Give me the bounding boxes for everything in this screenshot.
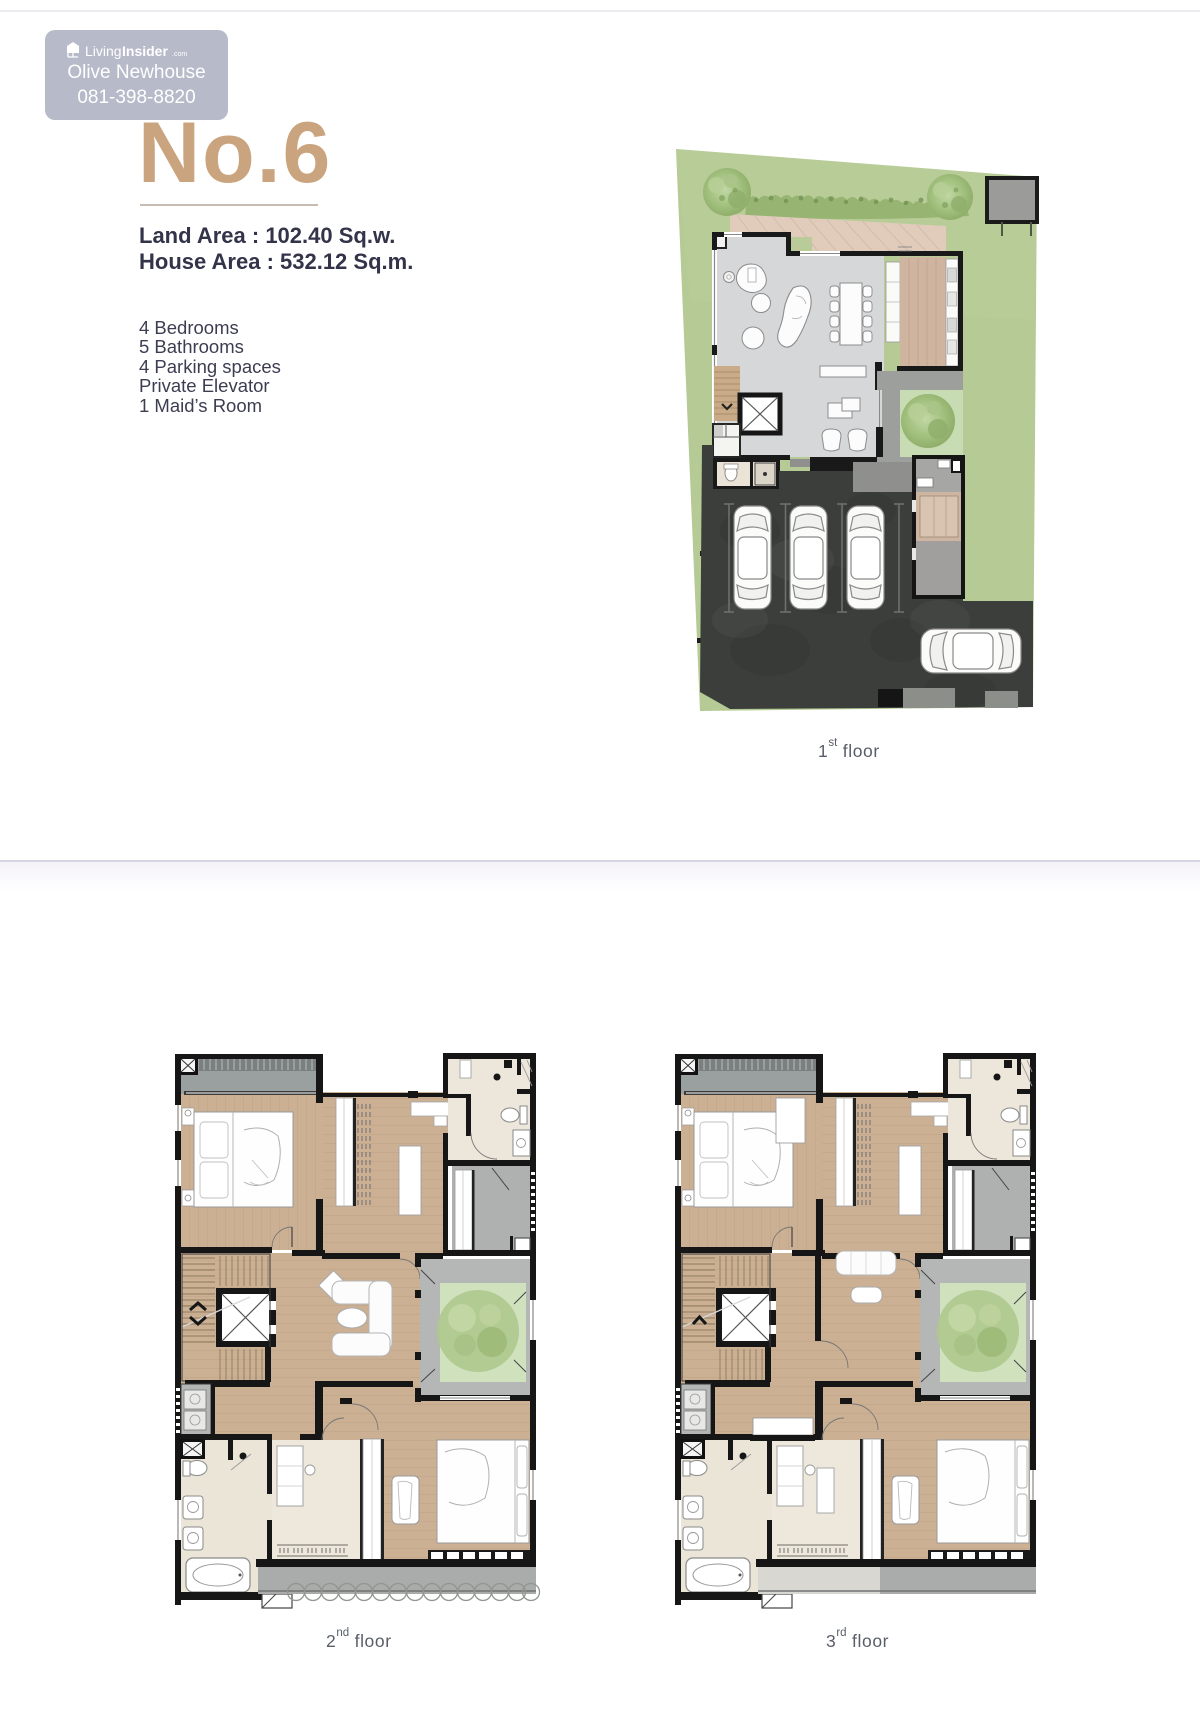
svg-text:.com: .com (172, 51, 187, 58)
svg-text:Insider: Insider (122, 43, 168, 59)
svg-text:Living: Living (85, 43, 122, 59)
